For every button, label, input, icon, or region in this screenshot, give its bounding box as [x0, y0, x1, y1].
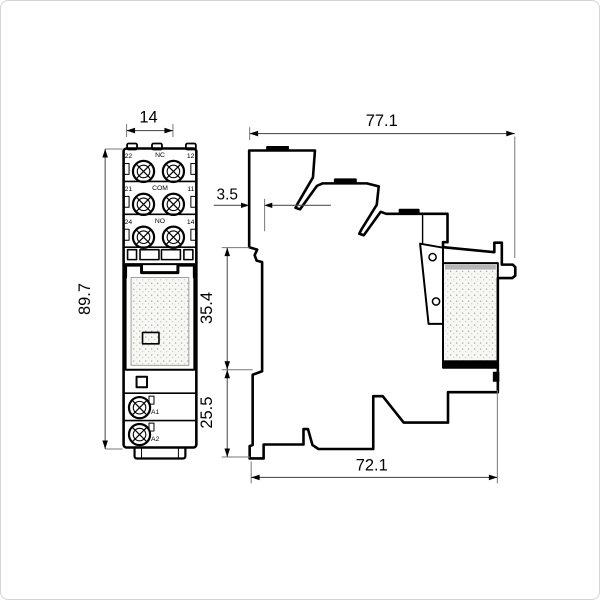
relay-dimension-drawing: 22 NC 12 21 COM 11 24 NO 14	[0, 0, 600, 600]
side-label-holder	[443, 263, 498, 368]
terminal-label: COM	[152, 185, 168, 192]
terminal-label: NC	[155, 152, 165, 159]
screw-terminal-icon	[129, 424, 150, 445]
drawing-svg: 22 NC 12 21 COM 11 24 NO 14	[1, 1, 599, 599]
screw-terminal-icon	[133, 227, 154, 248]
vent-slots	[128, 250, 193, 260]
label-window-stipple	[131, 278, 189, 366]
coil-terminal-a1: A1	[129, 396, 160, 418]
terminal-label: NO	[155, 218, 165, 225]
dim-label: 35.4	[198, 292, 216, 324]
label-window	[126, 264, 195, 370]
coil-terminal-a2: A2	[129, 423, 160, 445]
terminal-label: 11	[187, 186, 194, 193]
indicator-square	[137, 377, 147, 387]
dim-label: 89.7	[76, 283, 94, 315]
arrowhead-icon	[164, 128, 172, 134]
terminal-label: A1	[151, 409, 160, 416]
dim-overall-depth: 77.1	[250, 112, 515, 258]
screw-terminal-icon	[129, 397, 150, 418]
arrowhead-icon	[251, 475, 259, 481]
label-window-clip	[126, 265, 195, 277]
vent-slot	[128, 250, 137, 260]
side-view	[249, 146, 515, 458]
arrowhead-icon	[264, 203, 272, 208]
screw-terminal-icon	[163, 227, 184, 248]
side-label-base	[443, 360, 498, 367]
screw-terminal-icon	[133, 161, 154, 182]
vent-slot	[184, 250, 193, 260]
arrowhead-icon	[102, 149, 108, 157]
dim-upper-height: 35.4	[198, 248, 253, 370]
arrowhead-icon	[224, 449, 230, 457]
arrowhead-icon	[506, 131, 514, 137]
terminal-label: 22	[125, 153, 133, 160]
screw-terminal-icon	[133, 194, 154, 215]
arrowhead-icon	[224, 370, 230, 378]
step-tab	[399, 209, 420, 214]
arrowhead-icon	[224, 248, 230, 256]
arrowhead-icon	[250, 131, 258, 137]
front-bottom-foot	[135, 448, 186, 459]
bracket-hole	[432, 298, 439, 305]
screw-terminal-icon	[163, 161, 184, 182]
step-tab	[266, 146, 289, 151]
terminal-label: 14	[187, 219, 195, 226]
dim-front-width: 14	[127, 109, 173, 137]
front-view: 22 NC 12 21 COM 11 24 NO 14	[124, 144, 197, 459]
latch-bracket	[420, 244, 443, 324]
terminal-label: 21	[125, 186, 133, 193]
terminal-label: A2	[151, 436, 160, 443]
terminal-row-nc: 22 NC 12	[124, 152, 196, 182]
dim-label: 14	[139, 109, 157, 127]
vent-slot	[140, 250, 159, 260]
dim-front-height: 89.7	[76, 149, 122, 449]
dim-label: 77.1	[366, 112, 398, 130]
arrowhead-icon	[127, 128, 135, 134]
vent-slot	[161, 250, 180, 260]
dim-label: 25.5	[198, 397, 216, 429]
terminal-label: 12	[187, 153, 195, 160]
screw-terminal-icon	[163, 194, 184, 215]
dim-lower-height: 25.5	[198, 370, 250, 457]
side-edge-tab	[493, 372, 499, 382]
arrowhead-icon	[102, 441, 108, 449]
dim-label: 72.1	[356, 456, 388, 474]
terminal-label: 24	[125, 219, 133, 226]
step-tab	[334, 178, 357, 183]
arrowhead-icon	[224, 361, 230, 369]
dim-label: 3.5	[217, 186, 238, 203]
side-label-stipple	[445, 271, 496, 362]
terminal-row-no: 24 NO 14	[124, 218, 196, 248]
side-label-band	[445, 265, 496, 270]
bracket-hole	[429, 254, 436, 261]
arrowhead-icon	[489, 475, 497, 481]
terminal-row-com: 21 COM 11	[124, 185, 196, 215]
